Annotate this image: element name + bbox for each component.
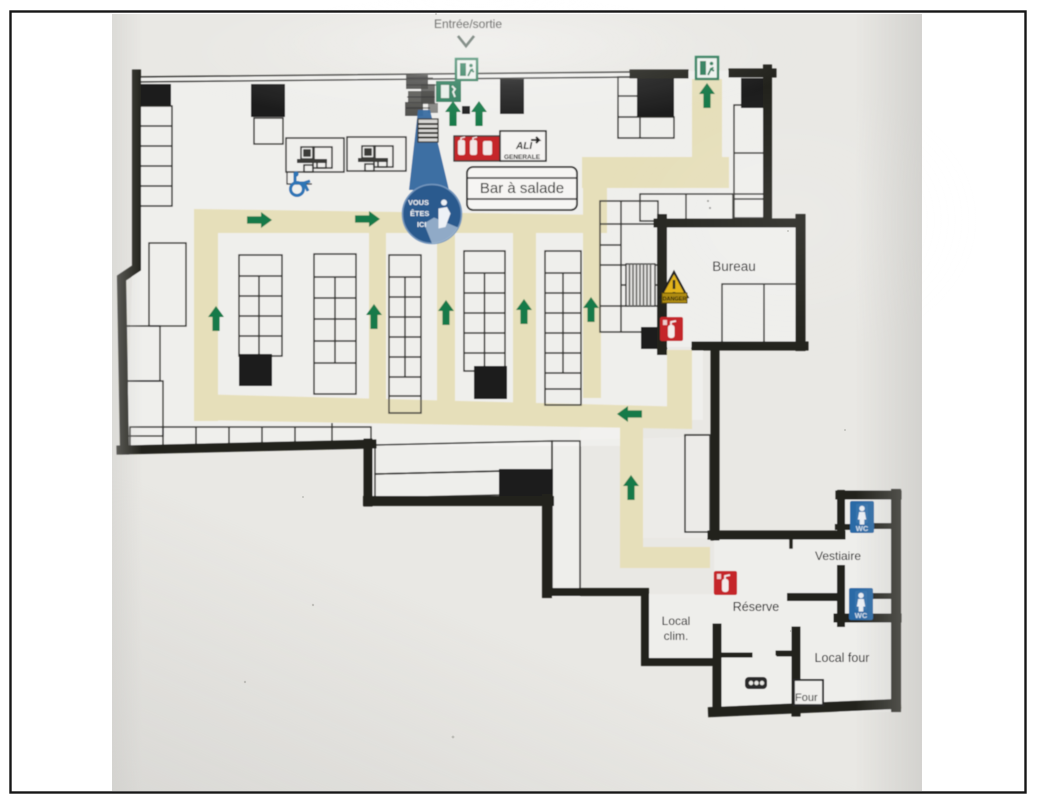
svg-text:VOUS: VOUS: [408, 198, 429, 207]
svg-text:ICI: ICI: [417, 220, 426, 229]
svg-text:ÊTES: ÊTES: [410, 209, 429, 218]
svg-text:Bar à salade: Bar à salade: [480, 180, 564, 197]
svg-text:ALI: ALI: [515, 141, 532, 152]
svg-text:GENERALE: GENERALE: [504, 154, 541, 161]
